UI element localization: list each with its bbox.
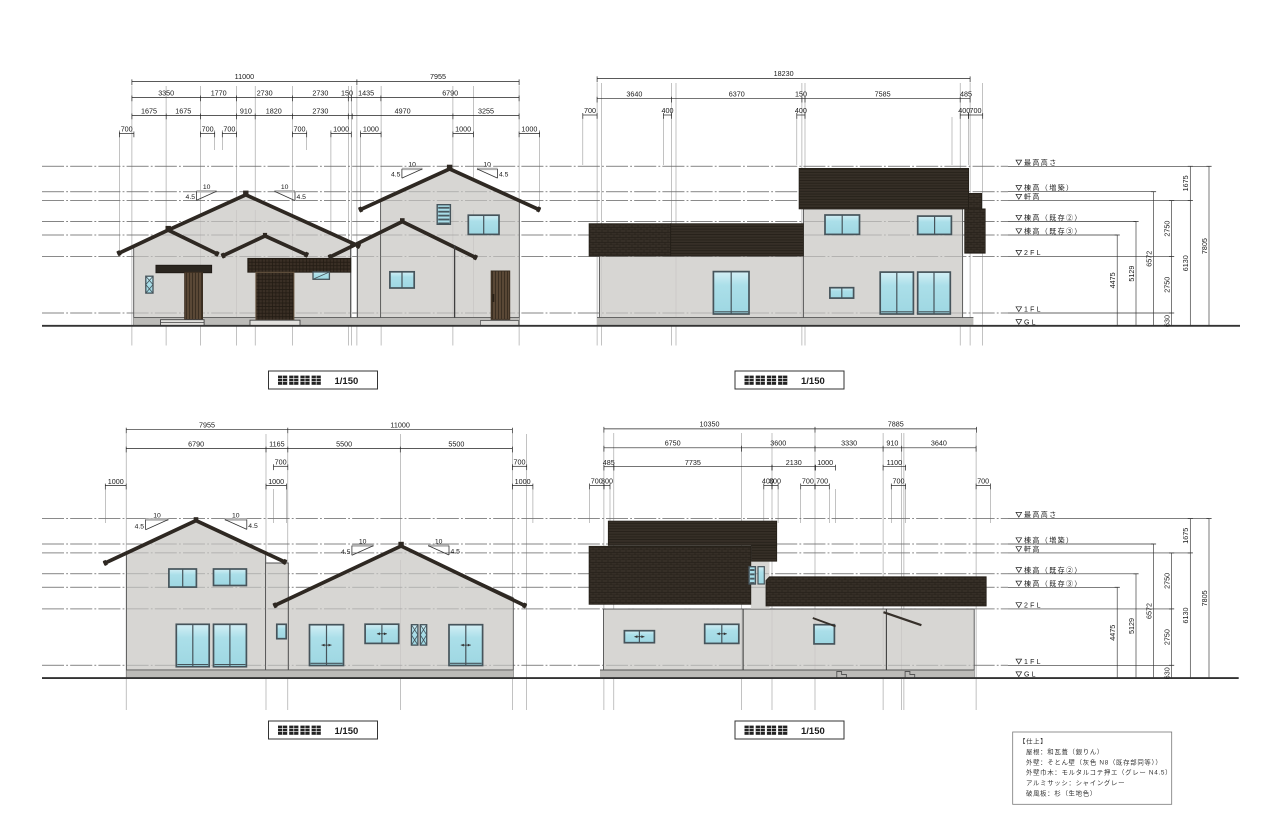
- svg-text:4.5: 4.5: [451, 549, 461, 556]
- svg-text:150: 150: [341, 88, 353, 97]
- svg-text:7805: 7805: [1200, 238, 1209, 254]
- svg-text:10: 10: [359, 538, 367, 545]
- svg-text:700: 700: [584, 106, 596, 115]
- svg-text:5500: 5500: [448, 439, 464, 448]
- svg-text:1675: 1675: [141, 106, 157, 115]
- svg-text:700: 700: [121, 125, 133, 134]
- svg-text:10350: 10350: [700, 420, 720, 429]
- svg-text:400: 400: [662, 106, 674, 115]
- svg-text:700: 700: [202, 125, 214, 134]
- svg-text:700: 700: [223, 125, 235, 134]
- svg-text:棟高（既存③）: 棟高（既存③）: [1024, 579, 1083, 588]
- svg-text:6130: 6130: [1181, 255, 1190, 271]
- svg-text:7735: 7735: [685, 458, 701, 467]
- svg-text:700: 700: [977, 477, 989, 486]
- svg-text:300: 300: [601, 477, 613, 486]
- svg-text:4.5: 4.5: [391, 172, 401, 179]
- svg-text:棟高（既存③）: 棟高（既存③）: [1024, 227, 1083, 236]
- svg-text:7955: 7955: [430, 72, 446, 81]
- svg-text:3600: 3600: [770, 439, 786, 448]
- svg-text:11000: 11000: [235, 72, 254, 81]
- svg-text:10: 10: [435, 538, 443, 545]
- svg-text:4.5: 4.5: [499, 172, 509, 179]
- svg-text:10: 10: [203, 184, 211, 191]
- svg-text:910: 910: [886, 439, 898, 448]
- svg-text:7585: 7585: [875, 90, 891, 99]
- svg-text:6790: 6790: [188, 439, 204, 448]
- svg-text:485: 485: [960, 90, 972, 99]
- svg-text:4.5: 4.5: [248, 523, 258, 530]
- svg-text:7955: 7955: [199, 421, 215, 430]
- svg-text:4.5: 4.5: [297, 194, 307, 201]
- svg-text:6790: 6790: [442, 88, 458, 97]
- svg-text:最高高さ: 最高高さ: [1024, 158, 1058, 167]
- svg-text:1000: 1000: [268, 477, 284, 486]
- svg-text:2750: 2750: [1162, 277, 1171, 293]
- svg-text:485: 485: [603, 458, 615, 467]
- svg-text:3350: 3350: [158, 88, 174, 97]
- svg-text:5129: 5129: [1127, 618, 1136, 634]
- svg-text:700: 700: [970, 106, 982, 115]
- svg-text:1000: 1000: [515, 477, 531, 486]
- svg-text:軒高: 軒高: [1024, 544, 1041, 553]
- svg-text:6750: 6750: [665, 439, 681, 448]
- svg-text:アルミサッシ：シャイングレー: アルミサッシ：シャイングレー: [1026, 778, 1125, 787]
- svg-text:300: 300: [769, 477, 781, 486]
- svg-text:4.5: 4.5: [135, 523, 145, 530]
- svg-text:棟高（既存②）: 棟高（既存②）: [1024, 213, 1083, 222]
- svg-text:6370: 6370: [729, 90, 745, 99]
- svg-text:10: 10: [408, 162, 416, 169]
- svg-text:1/150: 1/150: [335, 376, 359, 387]
- svg-text:150: 150: [795, 90, 807, 99]
- svg-text:外壁：そとん壁（灰色 N8（既存部同等））: 外壁：そとん壁（灰色 N8（既存部同等））: [1026, 757, 1162, 766]
- svg-text:3640: 3640: [931, 439, 947, 448]
- svg-text:3330: 3330: [841, 439, 857, 448]
- svg-text:700: 700: [514, 458, 526, 467]
- svg-text:GL: GL: [1024, 319, 1038, 326]
- svg-text:1820: 1820: [266, 106, 282, 115]
- svg-text:11000: 11000: [390, 421, 409, 430]
- svg-text:3255: 3255: [478, 106, 494, 115]
- svg-text:7885: 7885: [888, 420, 904, 429]
- svg-text:2FL: 2FL: [1024, 250, 1043, 257]
- svg-text:2FL: 2FL: [1024, 602, 1043, 609]
- svg-text:700: 700: [816, 477, 828, 486]
- svg-text:1000: 1000: [363, 125, 379, 134]
- svg-text:400: 400: [795, 106, 807, 115]
- svg-text:700: 700: [275, 458, 287, 467]
- svg-text:4.5: 4.5: [341, 549, 351, 556]
- svg-text:1000: 1000: [108, 477, 124, 486]
- svg-text:6572: 6572: [1144, 603, 1153, 619]
- svg-text:4970: 4970: [395, 106, 411, 115]
- svg-text:1/150: 1/150: [801, 726, 825, 737]
- svg-text:2750: 2750: [1162, 573, 1171, 589]
- svg-text:1/150: 1/150: [801, 376, 825, 387]
- svg-text:700: 700: [294, 125, 306, 134]
- svg-text:1000: 1000: [455, 125, 471, 134]
- svg-text:棟高（増築）: 棟高（増築）: [1024, 183, 1074, 192]
- svg-text:4475: 4475: [1108, 625, 1117, 641]
- svg-text:1770: 1770: [211, 88, 227, 97]
- svg-text:4475: 4475: [1108, 272, 1117, 288]
- svg-text:3640: 3640: [626, 90, 642, 99]
- svg-text:2750: 2750: [1162, 221, 1171, 237]
- svg-text:棟高（増築）: 棟高（増築）: [1024, 536, 1074, 545]
- svg-text:10: 10: [232, 512, 240, 519]
- svg-text:1435: 1435: [358, 88, 374, 97]
- svg-text:6572: 6572: [1144, 251, 1153, 267]
- svg-text:6130: 6130: [1181, 608, 1190, 624]
- svg-text:10: 10: [153, 512, 161, 519]
- svg-text:7805: 7805: [1200, 590, 1209, 606]
- svg-text:2750: 2750: [1162, 629, 1171, 645]
- svg-text:1000: 1000: [521, 125, 537, 134]
- svg-text:破風板：杉（生地色）: 破風板：杉（生地色）: [1026, 789, 1097, 798]
- svg-text:10: 10: [483, 162, 491, 169]
- svg-text:1000: 1000: [817, 458, 833, 467]
- svg-text:軒高: 軒高: [1024, 192, 1041, 201]
- svg-text:GL: GL: [1024, 672, 1038, 679]
- svg-text:1675: 1675: [1181, 175, 1190, 191]
- svg-text:2730: 2730: [257, 88, 273, 97]
- svg-text:630: 630: [1162, 315, 1171, 327]
- svg-text:1100: 1100: [887, 458, 902, 467]
- svg-text:700: 700: [802, 477, 814, 486]
- svg-text:1/150: 1/150: [335, 726, 359, 737]
- svg-text:1000: 1000: [333, 125, 349, 134]
- svg-text:4.5: 4.5: [186, 194, 196, 201]
- svg-text:10: 10: [281, 184, 289, 191]
- svg-text:910: 910: [240, 106, 252, 115]
- svg-text:5129: 5129: [1127, 266, 1136, 282]
- svg-text:1675: 1675: [175, 106, 191, 115]
- svg-text:700: 700: [893, 477, 905, 486]
- svg-text:1165: 1165: [269, 439, 284, 448]
- svg-text:外壁巾木：モルタルコテ押エ（グレー N4.5）: 外壁巾木：モルタルコテ押エ（グレー N4.5）: [1026, 768, 1172, 777]
- svg-text:最高高さ: 最高高さ: [1024, 510, 1058, 519]
- svg-text:【仕上】: 【仕上】: [1019, 737, 1047, 746]
- svg-text:1FL: 1FL: [1024, 307, 1043, 314]
- svg-text:屋根：和瓦葺（銀りん）: 屋根：和瓦葺（銀りん）: [1026, 747, 1104, 756]
- svg-text:棟高（既存②）: 棟高（既存②）: [1024, 565, 1083, 574]
- svg-text:2130: 2130: [786, 458, 802, 467]
- svg-text:2730: 2730: [312, 106, 328, 115]
- svg-text:1675: 1675: [1181, 528, 1190, 544]
- svg-text:18230: 18230: [774, 69, 794, 78]
- svg-text:2730: 2730: [312, 88, 328, 97]
- svg-text:630: 630: [1162, 667, 1171, 679]
- svg-text:5500: 5500: [336, 439, 352, 448]
- svg-text:1FL: 1FL: [1024, 659, 1043, 666]
